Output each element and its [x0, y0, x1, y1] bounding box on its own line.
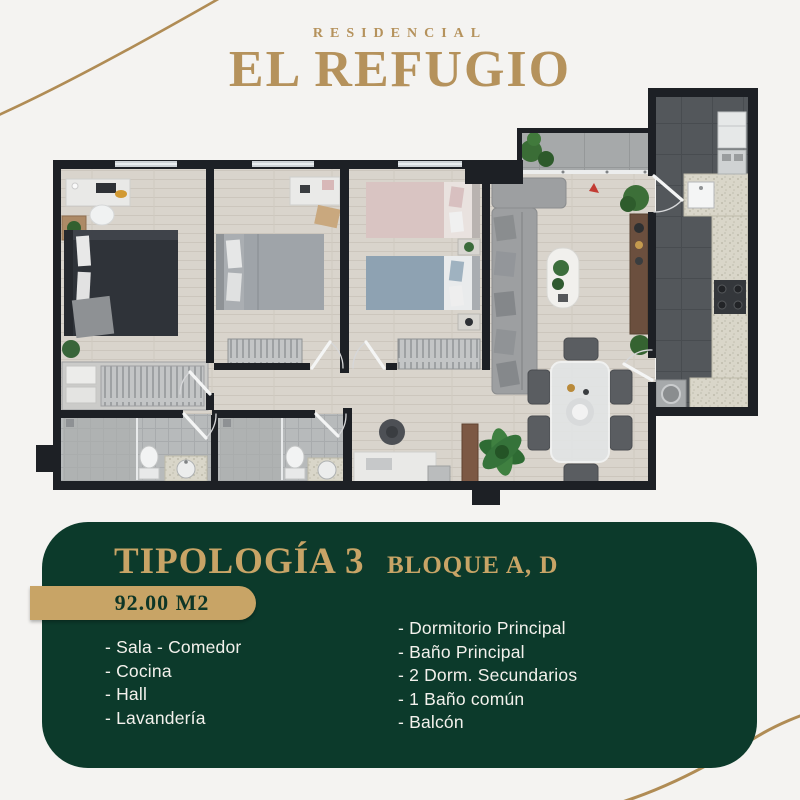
shower-head: [223, 419, 231, 427]
bedroom3-bed-pink: [366, 182, 480, 238]
bedroom2-bed: [216, 234, 324, 310]
feature-item: - Cocina: [105, 660, 241, 684]
toilet-common: [285, 446, 305, 479]
master-chair: [90, 205, 114, 225]
dining-chair: [528, 370, 550, 404]
sink-main: [165, 456, 207, 481]
typology-card: TIPOLOGÍA 3 BLOQUE A, D 92.00 M2 - Sala …: [42, 522, 757, 768]
windows: [115, 161, 462, 167]
flyer-page: { "brand": { "kicker": "RESIDENCIAL", "n…: [0, 0, 800, 800]
shower-head: [66, 419, 74, 427]
feature-item: - 1 Baño común: [398, 688, 577, 712]
master-bed: [64, 230, 178, 338]
dining-table: [551, 362, 609, 462]
features-right: - Dormitorio Principal- Baño Principal- …: [398, 617, 577, 735]
brand-kicker: RESIDENCIAL: [0, 26, 800, 42]
feature-item: - Baño Principal: [398, 641, 577, 665]
coffee-table: [547, 248, 579, 308]
area-badge-label: 92.00 M2: [115, 590, 210, 616]
toilet-main: [139, 446, 159, 479]
feature-item: - Balcón: [398, 711, 577, 735]
area-badge: 92.00 M2: [30, 586, 256, 620]
feature-item: - Sala - Comedor: [105, 636, 241, 660]
features-left: - Sala - Comedor- Cocina- Hall- Lavander…: [105, 636, 241, 730]
sink: [688, 182, 714, 208]
fridge: [718, 112, 746, 148]
feature-item: - Dormitorio Principal: [398, 617, 577, 641]
master-wardrobe: [62, 362, 208, 410]
feature-item: - Hall: [105, 683, 241, 707]
sink-common: [308, 458, 344, 481]
dining-chair: [528, 416, 550, 450]
sliding-door: [522, 170, 648, 174]
card-subtitle: BLOQUE A, D: [387, 552, 558, 580]
feature-item: - Lavandería: [105, 707, 241, 731]
dining-chair: [610, 416, 632, 450]
bedroom3-bed-blue: [366, 256, 480, 310]
bedroom3-closet: [398, 339, 480, 369]
dining-chair: [610, 370, 632, 404]
counter-bottom: [690, 378, 748, 408]
card-title: TIPOLOGÍA 3: [114, 540, 365, 583]
dining-chair: [564, 338, 598, 360]
card-title-row: TIPOLOGÍA 3 BLOQUE A, D: [114, 540, 558, 583]
master-plant: [62, 340, 80, 358]
floor-plan: [36, 85, 762, 513]
oven: [718, 150, 746, 174]
shower-main: [63, 416, 137, 482]
feature-item: - 2 Dorm. Secundarios: [398, 664, 577, 688]
washing-machine: [656, 380, 686, 408]
stove: [714, 280, 746, 314]
tall-cabinet: [462, 424, 478, 482]
